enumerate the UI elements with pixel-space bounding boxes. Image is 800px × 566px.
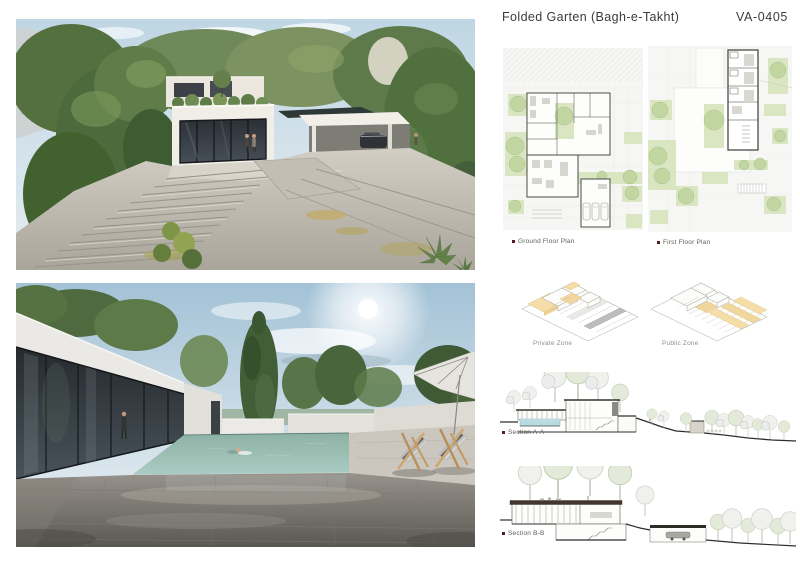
caption-label: Public Zone (662, 340, 699, 347)
bullet-square-icon (657, 241, 660, 244)
caption-label: Section B-B (508, 530, 545, 537)
caption-label: Section A-A (508, 429, 544, 436)
caption-label: First Floor Plan (663, 239, 710, 246)
caption-label: Ground Floor Plan (518, 238, 575, 245)
bullet-square-icon (512, 240, 515, 243)
presentation-board: Folded Garten (Bagh-e-Takht) VA-0405 (0, 0, 800, 566)
ground-floor-plan-svg (502, 46, 644, 236)
ground-floor-plan-drawing (502, 46, 644, 236)
caption-first-floor-plan: First Floor Plan (657, 239, 710, 246)
caption-public-zone: Public Zone (662, 340, 699, 347)
public-zone-axon-diagram (645, 277, 773, 341)
render-pool-view (16, 283, 475, 547)
aerial-render-illustration (16, 19, 475, 270)
project-code: VA-0405 (736, 10, 788, 24)
caption-private-zone: Private Zone (533, 340, 572, 347)
caption-label: Private Zone (533, 340, 572, 347)
caption-section-aa: Section A-A (502, 429, 544, 436)
section-aa-drawing (500, 372, 796, 446)
first-floor-plan-drawing (646, 44, 794, 238)
section-aa-svg (500, 372, 796, 446)
render-aerial-exterior (16, 19, 475, 270)
first-floor-plan-svg (646, 44, 794, 238)
caption-ground-floor-plan: Ground Floor Plan (512, 238, 575, 245)
private-zone-axon-svg (516, 277, 644, 341)
public-zone-axon-svg (645, 277, 773, 341)
bullet-square-icon (502, 431, 505, 434)
bullet-square-icon (502, 532, 505, 535)
private-zone-axon-diagram (516, 277, 644, 341)
board-title: Folded Garten (Bagh-e-Takht) (502, 10, 679, 24)
pool-render-illustration (16, 283, 475, 547)
caption-section-bb: Section B-B (502, 530, 545, 537)
